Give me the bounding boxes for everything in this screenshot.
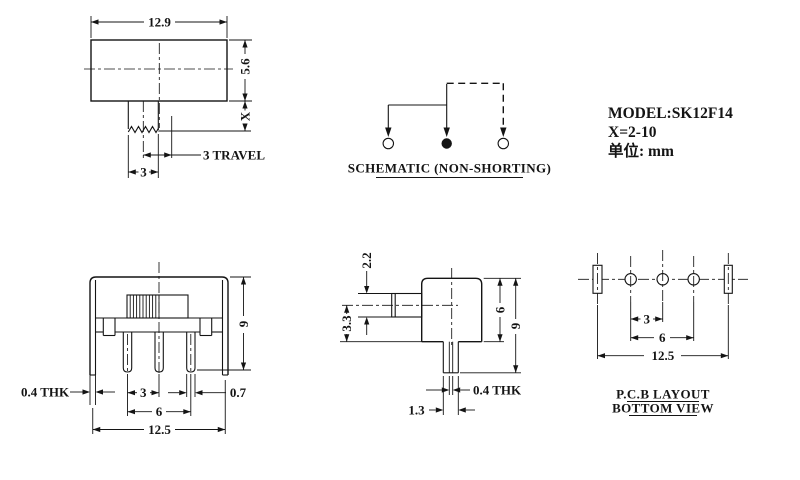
dim-front-pin-width: 0.7 xyxy=(168,374,247,400)
dim-label-knob-center: 3.3 xyxy=(339,315,354,332)
front-knob xyxy=(127,295,188,318)
x-range: X=2-10 xyxy=(608,124,657,141)
pcb-layout-view: 3 6 12.5 P.C.B LAYOUT BOTTOM VIEW xyxy=(578,250,748,416)
side-pin xyxy=(443,342,458,373)
terminal-2-circle-filled xyxy=(442,138,452,148)
schematic-caption: SCHEMATIC (NON-SHORTING) xyxy=(348,161,552,176)
arrow-to-terminal-3 xyxy=(500,128,506,138)
dim-label-top-width: 12.9 xyxy=(148,15,171,30)
dim-label-stem-width: 3 xyxy=(140,165,147,180)
knob-knurling xyxy=(130,295,159,318)
dim-label-front-overall: 12.5 xyxy=(148,422,171,437)
dim-knob-center: 3.3 xyxy=(339,305,422,341)
model-number: MODEL:SK12F14 xyxy=(608,105,733,122)
dim-label-front-pitch: 3 xyxy=(140,385,147,400)
dim-label-pcb-overall: 12.5 xyxy=(652,348,675,363)
pcb-caption-line2: BOTTOM VIEW xyxy=(612,401,714,416)
dim-side-total-height: 9 xyxy=(460,278,523,373)
terminal-3-circle xyxy=(498,138,508,148)
dim-front-span: 6 xyxy=(128,404,191,419)
knob-outline xyxy=(127,295,188,318)
dim-label-front-thk: 0.4 THK xyxy=(21,385,70,400)
dim-label-pcb-span: 6 xyxy=(659,330,666,345)
side-knob xyxy=(342,294,458,318)
drawing-sheet: 12.9 5.6 X 3 TRAVEL xyxy=(0,0,800,480)
dim-label-side-body-height: 6 xyxy=(493,306,508,313)
dim-travel: 3 TRAVEL xyxy=(143,116,265,163)
dim-top-height: 5.6 xyxy=(229,40,253,101)
schematic-view: SCHEMATIC (NON-SHORTING) xyxy=(348,83,552,177)
front-view: 9 0.4 THK 3 0.7 xyxy=(21,262,251,437)
dim-label-travel: 3 TRAVEL xyxy=(203,148,265,163)
dim-front-thk: 0.4 THK xyxy=(21,375,115,405)
side-view: 2.2 3.3 6 9 xyxy=(339,252,523,417)
dim-label-side-thk: 0.4 THK xyxy=(473,383,522,398)
terminal-1-circle xyxy=(383,138,393,148)
dim-stem-x: X xyxy=(158,101,252,131)
dim-label-top-height: 5.6 xyxy=(238,58,253,75)
dim-label-front-height: 9 xyxy=(236,320,251,327)
schematic-wiring xyxy=(385,83,506,137)
dim-label-front-pin-width: 0.7 xyxy=(230,385,247,400)
dim-label-pcb-pitch: 3 xyxy=(643,312,650,327)
arrow-to-terminal-2 xyxy=(444,128,450,138)
dim-label-knob-height: 2.2 xyxy=(359,252,374,268)
dim-top-width: 12.9 xyxy=(91,15,227,39)
dim-knob-height: 2.2 xyxy=(358,252,392,335)
dim-side-pin-width: 1.3 xyxy=(408,403,475,418)
dim-pcb-pitch: 3 xyxy=(631,312,663,327)
dim-label-side-total-height: 9 xyxy=(508,322,523,329)
top-view: 12.9 5.6 X 3 TRAVEL xyxy=(84,15,265,180)
dim-pcb-span: 6 xyxy=(631,330,694,345)
arrow-to-terminal-1 xyxy=(385,128,391,138)
dim-front-pitch: 3 xyxy=(128,385,160,400)
dim-front-height: 9 xyxy=(197,277,251,370)
unit-label: 单位: mm xyxy=(608,141,674,160)
title-block: MODEL:SK12F14 X=2-10 单位: mm xyxy=(608,105,733,160)
dim-pcb-overall: 12.5 xyxy=(598,348,729,363)
drawing-canvas: 12.9 5.6 X 3 TRAVEL xyxy=(0,0,800,480)
dim-label-stem-x: X xyxy=(238,111,253,121)
dim-label-side-pin-width: 1.3 xyxy=(408,403,425,418)
dim-label-front-span: 6 xyxy=(156,404,163,419)
pcb-caption-line1: P.C.B LAYOUT xyxy=(616,387,710,402)
